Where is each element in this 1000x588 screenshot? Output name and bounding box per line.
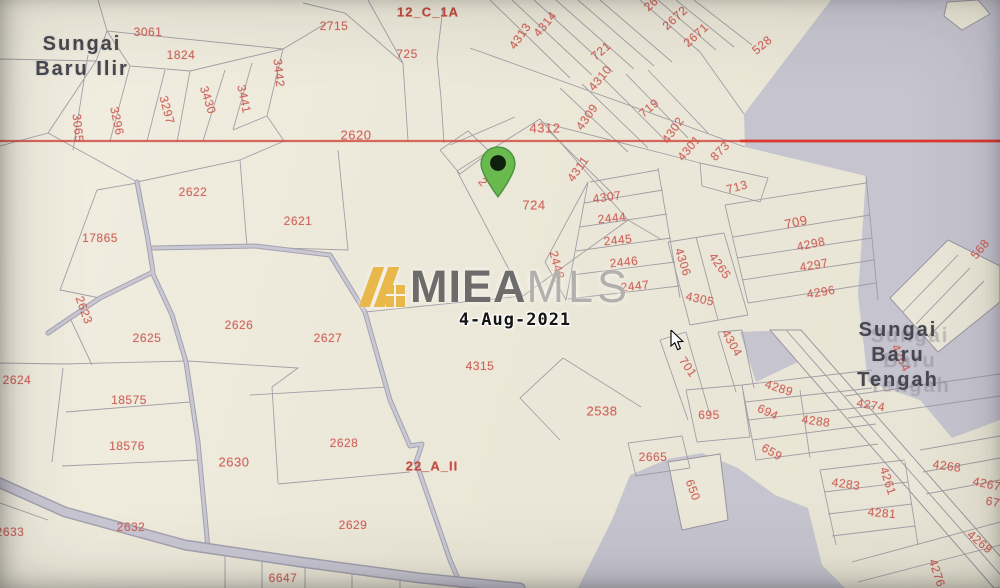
parcel-label: 4297: [799, 256, 830, 275]
parcel-label: 4269: [965, 527, 996, 556]
parcel-label: 695: [698, 408, 720, 422]
parcel-label: 4313: [506, 20, 534, 52]
parcel-label: 2622: [179, 185, 208, 199]
parcel-label: 3441: [234, 84, 254, 115]
parcel-label: 694: [755, 401, 780, 423]
parcel-label: 4311: [564, 154, 591, 185]
parcel-label: 1824: [167, 48, 196, 62]
miea-logo-icon: [360, 265, 406, 309]
parcel-label: 6647: [269, 571, 298, 585]
parcel-label: 3065: [70, 113, 87, 143]
parcel-label: 2632: [117, 520, 146, 534]
parcel-label: 67: [985, 494, 1000, 511]
parcel-label: 4307: [592, 188, 622, 206]
parcel-label: 4281: [867, 505, 897, 521]
parcel-label: 4304: [719, 327, 745, 359]
zone-label: 12_C_1A: [397, 5, 459, 20]
parcel-label: 18575: [111, 393, 147, 407]
parcel-label: 568: [968, 236, 993, 261]
parcel-label: 2538: [587, 404, 618, 419]
parcel-label: 701: [676, 354, 700, 380]
parcel-label: 709: [783, 212, 809, 231]
parcel-label: 2623: [73, 294, 96, 326]
parcel-label: 2629: [339, 518, 368, 532]
parcel-label: 4274: [856, 396, 887, 415]
watermark-brand-suffix: MLS: [527, 261, 632, 313]
parcel-label: 4302: [659, 114, 687, 146]
parcel-label: 873: [707, 138, 732, 163]
parcel-label: 721: [588, 39, 613, 64]
parcel-label: 2672: [660, 3, 691, 33]
parcel-label: 724: [522, 198, 545, 213]
parcel-label: 3442: [271, 58, 288, 88]
parcel-label: 4306: [672, 246, 694, 278]
parcel-label: 4315: [466, 359, 495, 373]
parcel-label: 2671: [681, 20, 712, 50]
parcel-label: 4288: [801, 412, 831, 430]
parcel-label: 4309: [573, 101, 601, 133]
parcel-label: 3430: [197, 84, 219, 116]
parcel-label: 4261: [877, 465, 899, 497]
parcel-label: 3297: [157, 94, 178, 125]
parcel-label: 26: [641, 0, 661, 14]
place-name: SungaiBaruTengah: [857, 318, 939, 393]
map-viewport[interactable]: 3061182430653296329734303441344227157252…: [0, 0, 1000, 588]
parcel-label: 713: [725, 177, 749, 196]
place-name: SungaiBaru Ilir: [35, 32, 129, 82]
parcel-label: 2620: [341, 128, 372, 143]
parcel-label: 650: [683, 477, 704, 502]
parcel-label: 659: [759, 441, 785, 464]
parcel-label: 2630: [219, 455, 250, 470]
parcel-label: 725: [396, 47, 418, 61]
parcel-label: 4296: [806, 283, 837, 302]
zone-label: 22_A_II: [406, 459, 459, 474]
watermark: MIEA MLS: [360, 263, 631, 311]
parcel-label: 4289: [763, 377, 795, 399]
parcel-label: 528: [749, 33, 774, 58]
parcel-label: 4301: [674, 133, 703, 164]
parcel-label: 2665: [639, 450, 668, 464]
mouse-cursor-icon: [670, 330, 685, 352]
parcel-label: 4305: [685, 289, 716, 309]
parcel-label: 719: [636, 96, 661, 121]
watermark-brand: MIEA: [410, 261, 527, 313]
parcel-label: 4314: [530, 9, 559, 40]
parcel-label: 2627: [314, 331, 343, 345]
parcel-label: 2626: [225, 318, 254, 332]
parcel-label: 4283: [831, 475, 861, 493]
parcel-label: 3296: [107, 106, 127, 137]
parcel-label: 4265: [706, 250, 734, 282]
watermark-date: 4-Aug-2021: [459, 310, 571, 330]
parcel-label: 4298: [796, 234, 827, 254]
parcel-label: 2445: [603, 232, 633, 249]
parcel-label: 3061: [134, 25, 163, 39]
parcel-label: 2625: [133, 331, 162, 345]
parcel-label: 2444: [597, 210, 627, 227]
parcel-label: 2633: [0, 525, 24, 539]
parcel-label: 2715: [320, 19, 349, 33]
parcel-label: 4267: [972, 474, 1000, 494]
parcel-label: 4276: [926, 557, 948, 588]
parcel-label: 4268: [932, 457, 962, 475]
parcel-label: 2624: [3, 373, 32, 387]
parcel-label: 4312: [530, 121, 561, 136]
map-pin-marker[interactable]: [479, 146, 517, 199]
parcel-label: 18576: [109, 439, 145, 453]
parcel-label: 4310: [585, 63, 614, 94]
parcel-label: 17865: [82, 231, 118, 245]
parcel-label: 2621: [284, 214, 313, 228]
parcel-label: 2628: [330, 436, 359, 450]
